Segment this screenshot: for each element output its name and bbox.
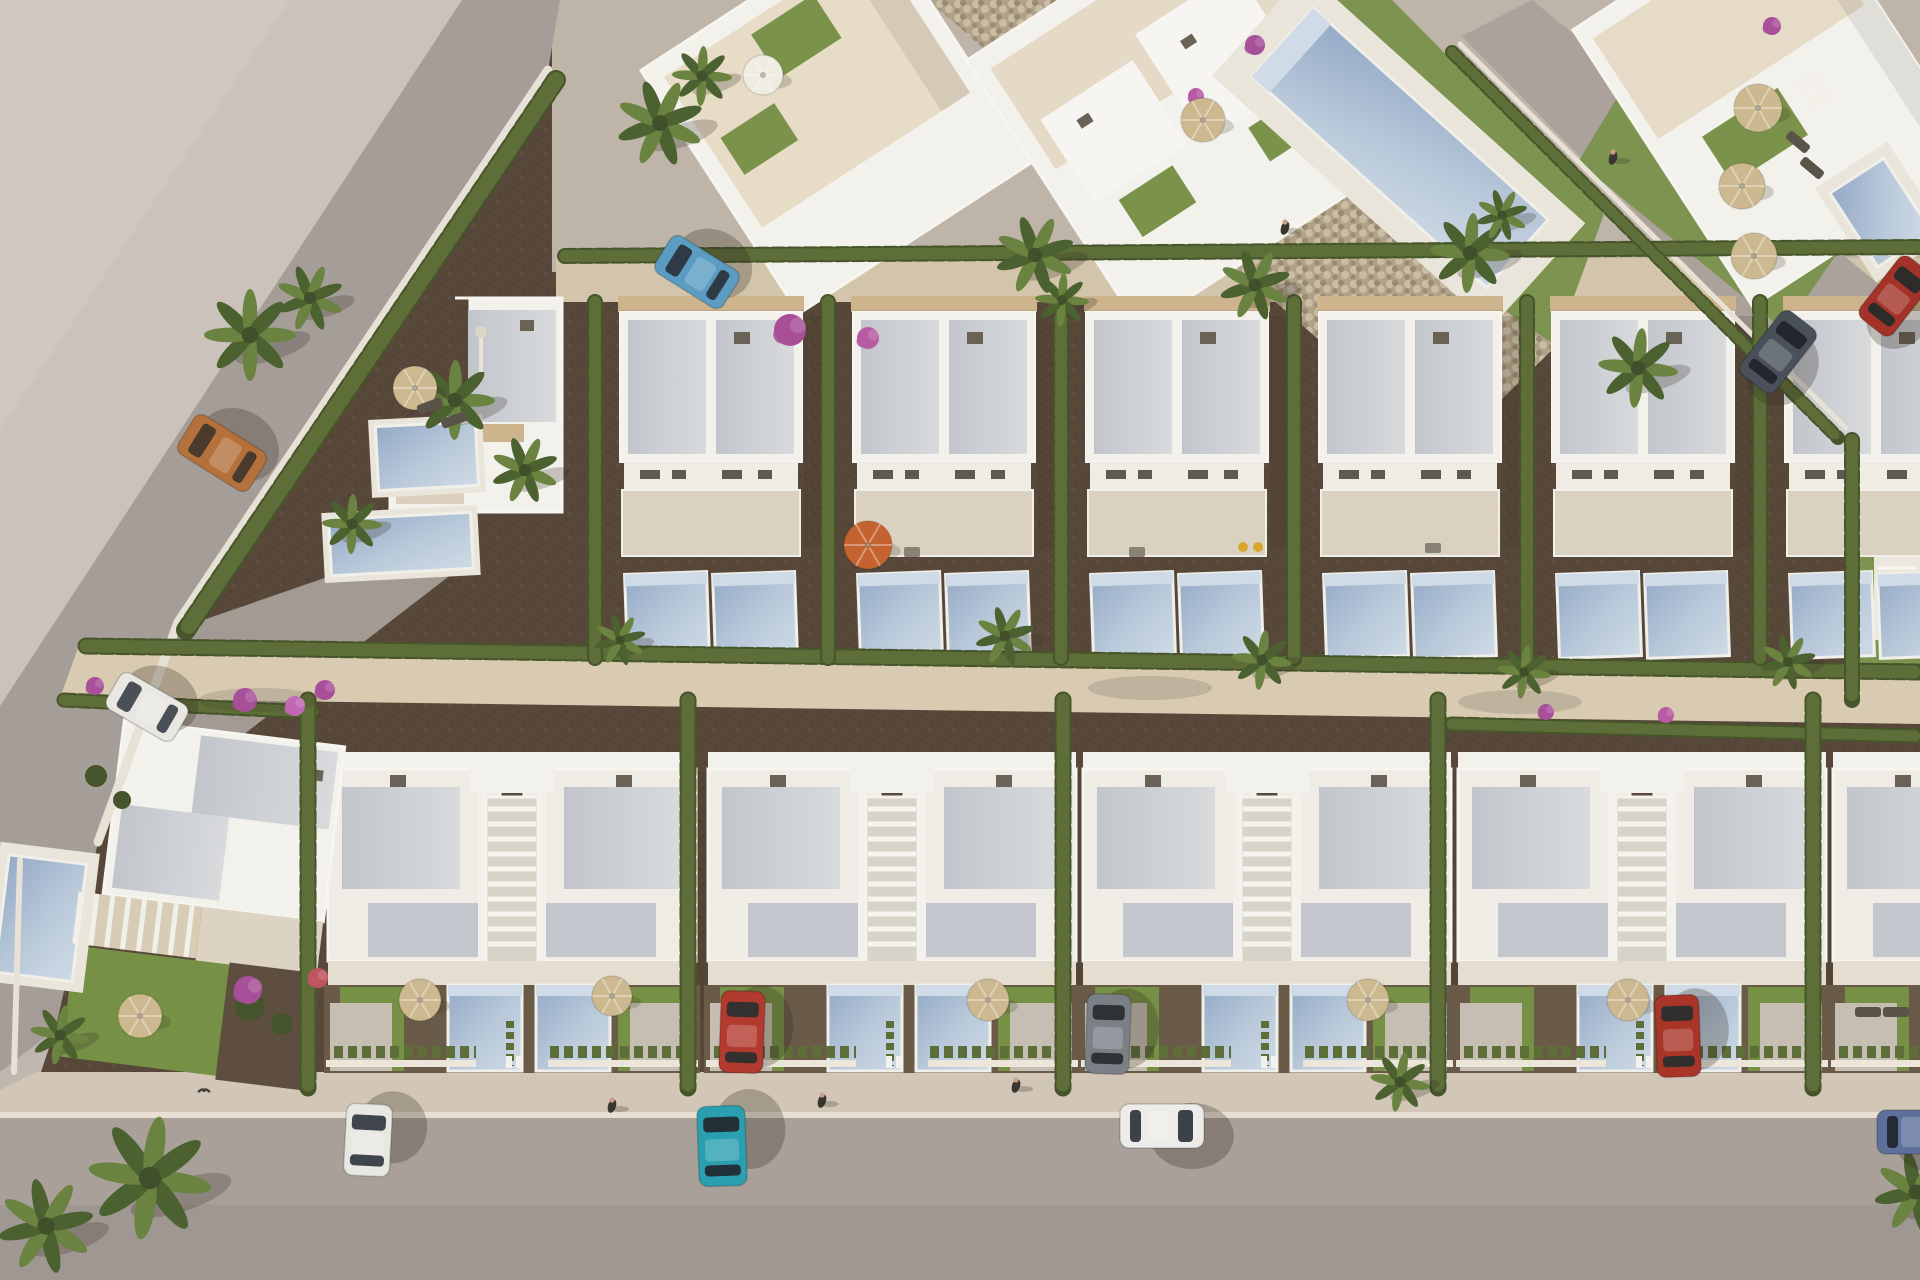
ac-unit [770, 775, 786, 787]
windshield [1092, 1004, 1125, 1020]
central-staircase [866, 797, 918, 963]
roof-panel [1694, 787, 1812, 889]
windshield [703, 1116, 740, 1132]
ac-unit [1746, 775, 1762, 787]
ac-unit [1145, 775, 1161, 787]
roof-panel [1327, 320, 1405, 454]
window [1604, 470, 1618, 479]
central-staircase [1616, 797, 1668, 963]
window [991, 470, 1005, 479]
windshield [1661, 1005, 1694, 1021]
private-pool [1091, 572, 1176, 659]
villa-duplex-upper [851, 296, 1061, 658]
sun-lounger [1883, 1007, 1909, 1017]
front-fence [326, 1060, 476, 1067]
bush [271, 1013, 293, 1035]
terrace-chair [1253, 542, 1263, 552]
front-terrace [1458, 961, 1826, 987]
roof-panel-low [1498, 903, 1620, 957]
ac-unit [1666, 332, 1682, 344]
front-fence [1831, 1060, 1920, 1067]
bush [85, 765, 107, 787]
rear-window [725, 1051, 757, 1063]
roof-panel [1097, 787, 1215, 889]
roof-panel-low [1289, 903, 1411, 957]
rear-window [1887, 1116, 1898, 1148]
window [1805, 470, 1825, 479]
tree-shadow [1088, 676, 1212, 700]
roof-panel [944, 787, 1062, 889]
window [1339, 470, 1359, 479]
villa-block [0, 855, 87, 982]
window [1690, 470, 1704, 479]
rear-window [705, 1164, 741, 1176]
ac-unit [616, 775, 632, 787]
ac-unit [1433, 332, 1449, 344]
central-staircase [1241, 797, 1293, 963]
car-roof [726, 1024, 757, 1047]
roof-panel-low [534, 903, 656, 957]
car-roof [705, 1138, 740, 1161]
roof-trim [1317, 296, 1503, 312]
window [1421, 470, 1441, 479]
front-terrace [328, 961, 696, 987]
terrace-table [1129, 547, 1145, 557]
private-pool [1324, 572, 1409, 659]
roof-panel [949, 320, 1027, 454]
ac-unit [1200, 332, 1216, 344]
private-pool [1790, 572, 1875, 659]
roof-panel [1415, 320, 1493, 454]
gate-post [1261, 1056, 1267, 1068]
window [955, 470, 975, 479]
villa-duplex-upper [1084, 296, 1294, 658]
stair-head [470, 757, 554, 793]
aerial-render-page [0, 0, 1920, 1280]
window [1654, 470, 1674, 479]
villa-duplex-lower [1829, 752, 1920, 1073]
gate-post [886, 1056, 892, 1068]
roof-panel-low [368, 903, 490, 957]
roof-panel [722, 787, 840, 889]
windshield [727, 1001, 760, 1017]
terrace [1554, 490, 1732, 556]
stair-head [1225, 757, 1309, 793]
rear-window [1091, 1052, 1123, 1064]
private-pool [1412, 572, 1497, 659]
villa-duplex-lower [1454, 752, 1852, 1073]
roof-trim [851, 296, 1037, 312]
roof-panel-low [1664, 903, 1786, 957]
private-pool [1645, 572, 1730, 659]
window [905, 470, 919, 479]
roof-panel-low [748, 903, 870, 957]
front-terrace [708, 961, 1076, 987]
gate-post [1636, 1056, 1642, 1068]
private-pool [1878, 572, 1920, 659]
bush [113, 791, 131, 809]
villa-block [520, 320, 534, 331]
sun-lounger [1855, 1007, 1881, 1017]
window [758, 470, 772, 479]
roof-panel-low [1873, 903, 1920, 957]
terrace [622, 490, 800, 556]
window [1138, 470, 1152, 479]
window [1371, 470, 1385, 479]
ac-unit [1895, 775, 1911, 787]
window [1572, 470, 1592, 479]
private-pool [713, 572, 798, 659]
villa-block [112, 804, 229, 901]
gate-post [516, 1056, 522, 1068]
roof-panel [1847, 787, 1920, 889]
ac-unit [1371, 775, 1387, 787]
aerial-3d-render-of-villa-development [0, 0, 1920, 1280]
window [1106, 470, 1126, 479]
central-staircase [486, 797, 538, 963]
stair-head [1600, 757, 1684, 793]
stair-head [850, 757, 934, 793]
terrace-table [1425, 543, 1441, 553]
villa-duplex-upper [1317, 296, 1527, 658]
terrace [1321, 490, 1499, 556]
villa-duplex-lower [324, 752, 722, 1073]
car-roof [1663, 1028, 1694, 1051]
ac-unit [390, 775, 406, 787]
front-terrace [1083, 961, 1451, 987]
window [1457, 470, 1471, 479]
roof-panel-low [1123, 903, 1245, 957]
private-pool [1557, 572, 1642, 659]
rear-window [1663, 1055, 1695, 1067]
ac-unit [1520, 775, 1536, 787]
rear-window [1130, 1110, 1141, 1142]
villa-duplex-upper [618, 296, 828, 658]
roof-panel [1319, 787, 1437, 889]
window [1188, 470, 1208, 479]
window [1887, 470, 1907, 479]
ac-unit [734, 332, 750, 344]
gate-post [896, 1056, 902, 1068]
aerial-3d-render [0, 0, 1920, 1280]
window [722, 470, 742, 479]
car-roof [1092, 1026, 1123, 1049]
car-roof [1901, 1117, 1920, 1147]
window [640, 470, 660, 479]
roof-panel-low [914, 903, 1036, 957]
window [873, 470, 893, 479]
terrace-chair [1238, 542, 1248, 552]
windshield [1178, 1110, 1193, 1142]
ac-unit [996, 775, 1012, 787]
rear-window [350, 1154, 385, 1167]
roof-panel [342, 787, 460, 889]
terrace-table [904, 547, 920, 557]
roof-panel [564, 787, 682, 889]
front-fence [548, 1060, 698, 1067]
roof-panel [1182, 320, 1260, 454]
roof-panel [1472, 787, 1590, 889]
ac-unit [967, 332, 983, 344]
window [1224, 470, 1238, 479]
windshield [352, 1114, 387, 1131]
curb [0, 1112, 1920, 1118]
roof-panel [628, 320, 706, 454]
gate-post [1646, 1056, 1652, 1068]
gate-post [506, 1056, 512, 1068]
car-roof [351, 1132, 384, 1156]
front-terrace [1833, 961, 1920, 987]
front-fence [1456, 1060, 1606, 1067]
private-pool [858, 572, 943, 659]
bird [198, 1090, 210, 1093]
window [672, 470, 686, 479]
gate-post [1271, 1056, 1277, 1068]
car-roof [1147, 1111, 1169, 1141]
roof-panel [1094, 320, 1172, 454]
